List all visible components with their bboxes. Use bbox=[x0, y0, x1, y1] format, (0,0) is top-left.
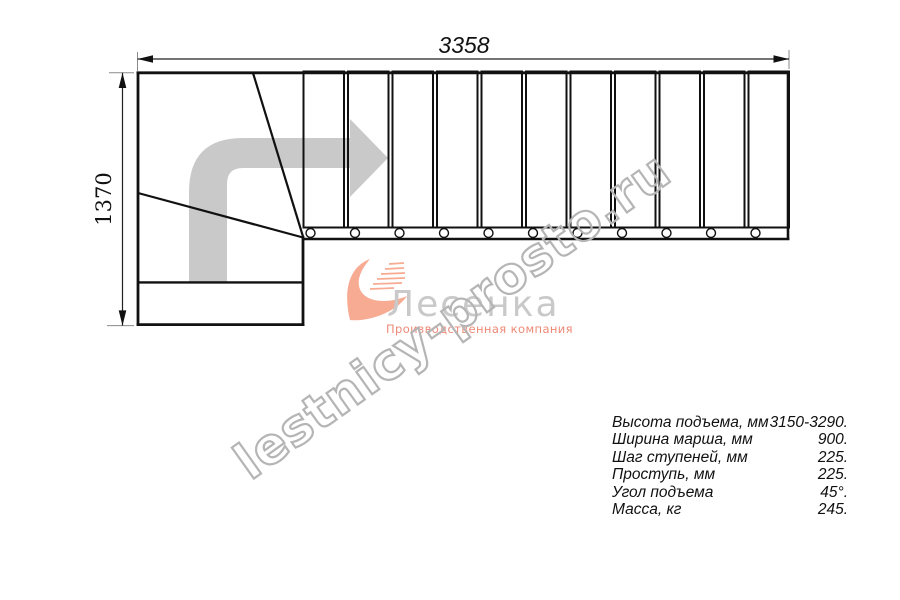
spec-row-mass: Масса, кг 245. bbox=[612, 501, 848, 518]
stair-step bbox=[749, 72, 790, 228]
spec-value: 225. bbox=[818, 449, 848, 466]
baluster-circle bbox=[573, 229, 582, 238]
spec-label: Шаг ступеней, мм bbox=[612, 449, 748, 466]
spec-row-height: Высота подъема, мм 3150-3290. bbox=[612, 414, 848, 431]
dim-arrow-left bbox=[138, 55, 154, 63]
baluster-circle bbox=[306, 229, 315, 238]
baluster-circle bbox=[529, 229, 538, 238]
stair-step bbox=[660, 72, 701, 228]
spec-table: Высота подъема, мм 3150-3290. Ширина мар… bbox=[612, 414, 848, 518]
left-dimension-label: 1370 bbox=[92, 172, 116, 225]
baluster-circle bbox=[618, 229, 627, 238]
spec-row-tread: Проступь, мм 225. bbox=[612, 466, 848, 483]
spec-value: 900. bbox=[818, 431, 848, 448]
dim-arrow-up bbox=[119, 73, 127, 88]
stair-step bbox=[482, 72, 523, 228]
spec-value: 45°. bbox=[820, 484, 848, 501]
baluster-circle bbox=[440, 229, 449, 238]
company-logo-subtitle: Производственная компания bbox=[386, 322, 556, 336]
spec-row-angle: Угол подъема 45°. bbox=[612, 484, 848, 501]
top-dimension-label: 3358 bbox=[438, 32, 489, 58]
baluster-circle bbox=[707, 229, 716, 238]
company-logo-name: Лесенка bbox=[387, 284, 557, 325]
baluster-circle bbox=[662, 229, 671, 238]
spec-label: Ширина марша, мм bbox=[612, 431, 753, 448]
top-dimension: 3358 bbox=[138, 32, 790, 71]
stair-step bbox=[437, 72, 478, 228]
spec-label: Высота подъема, мм bbox=[612, 414, 769, 431]
staircase-drawing-page: 3358 1370 Лесенка Производственная компа… bbox=[0, 0, 900, 600]
spec-row-step-pitch: Шаг ступеней, мм 225. bbox=[612, 449, 848, 466]
dim-arrow-right bbox=[774, 55, 790, 63]
spec-row-flight-width: Ширина марша, мм 900. bbox=[612, 431, 848, 448]
spec-value: 3150-3290. bbox=[770, 414, 848, 431]
baluster-circle bbox=[751, 229, 760, 238]
stair-step bbox=[571, 72, 612, 228]
spec-label: Масса, кг bbox=[612, 501, 681, 518]
spec-value: 225. bbox=[818, 466, 848, 483]
baluster-circles bbox=[306, 229, 760, 238]
stair-step bbox=[393, 72, 434, 228]
spec-label: Угол подъема bbox=[612, 484, 713, 501]
baluster-circle bbox=[484, 229, 493, 238]
spec-value: 245. bbox=[818, 501, 848, 518]
dim-arrow-down bbox=[119, 310, 127, 325]
stair-step bbox=[526, 72, 567, 228]
baluster-circle bbox=[395, 229, 404, 238]
stair-step bbox=[615, 72, 656, 228]
stair-step bbox=[704, 72, 745, 228]
spec-label: Проступь, мм bbox=[612, 466, 715, 483]
baluster-circle bbox=[351, 229, 360, 238]
left-dimension: 1370 bbox=[92, 73, 134, 326]
